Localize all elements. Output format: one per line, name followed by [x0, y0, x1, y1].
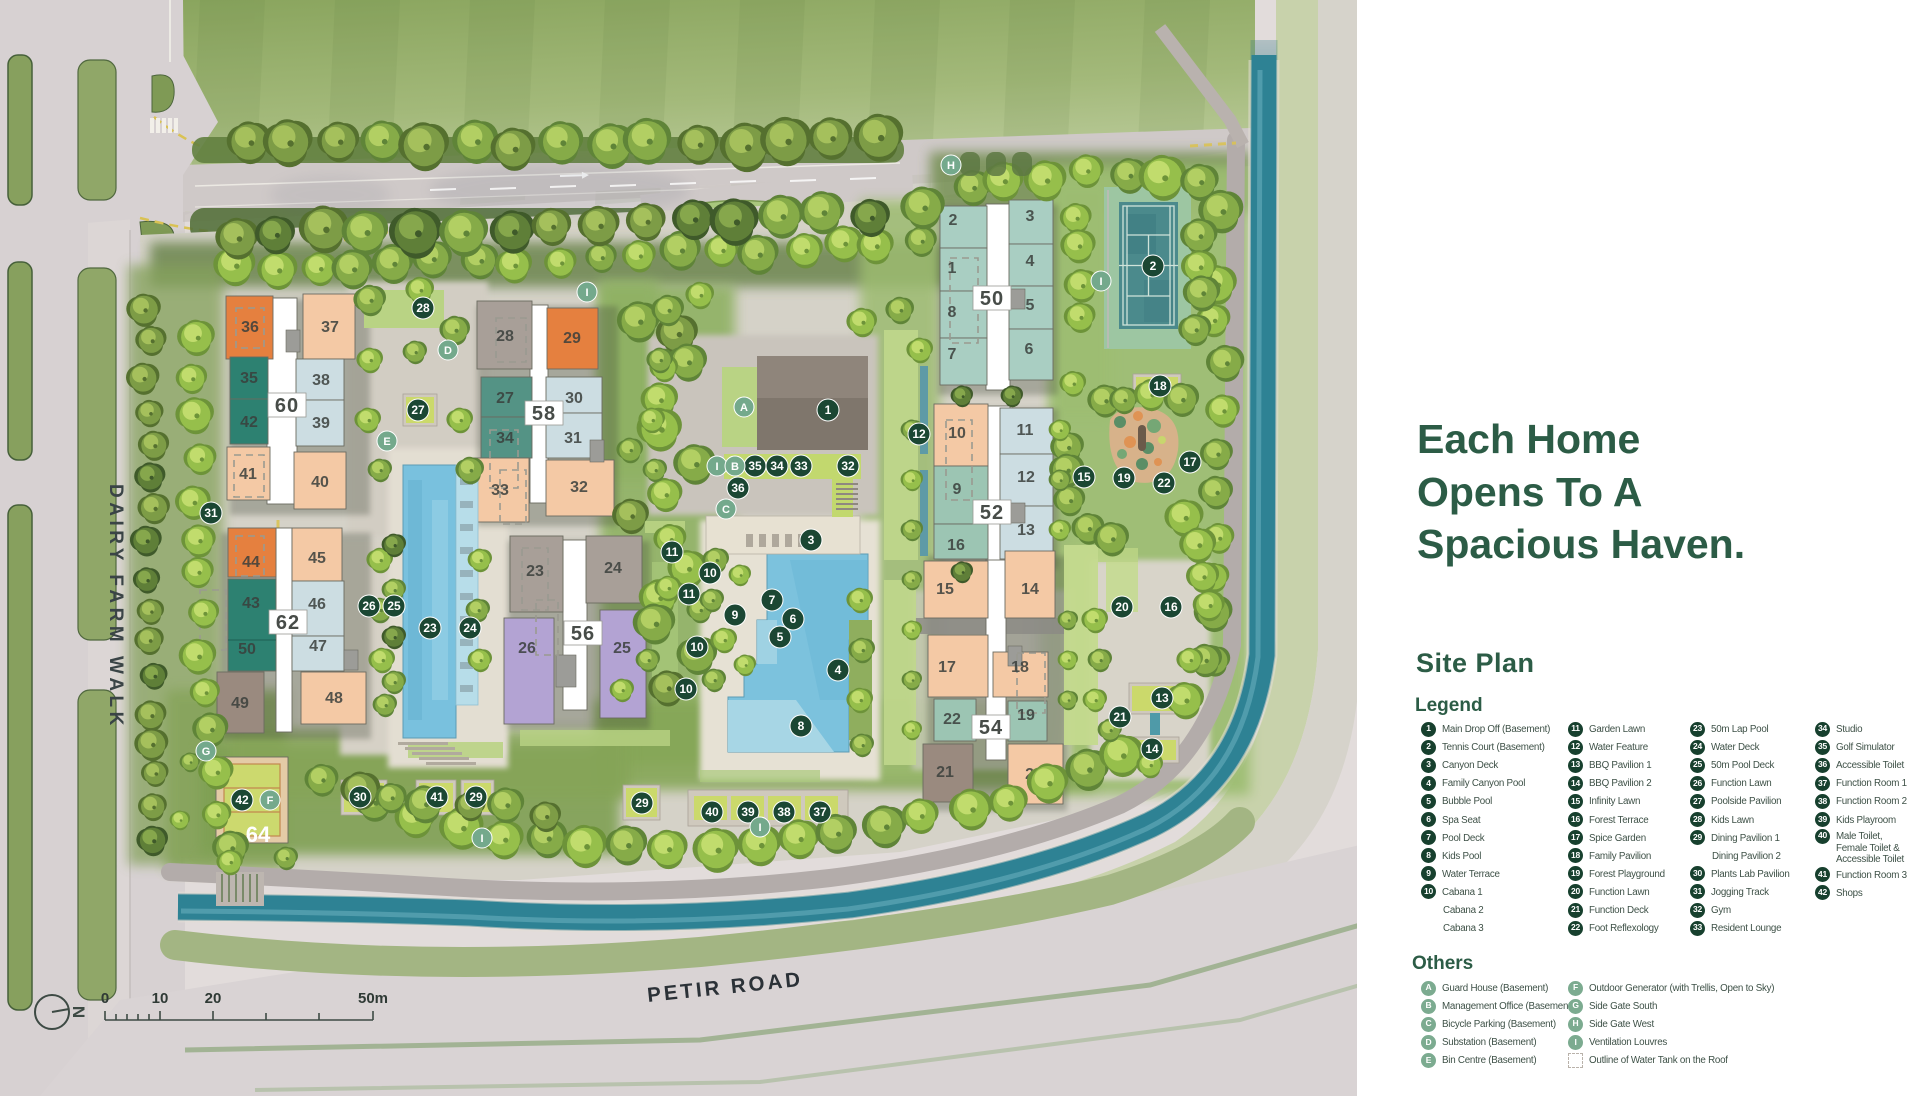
svg-text:41: 41: [430, 790, 444, 804]
svg-text:1: 1: [948, 260, 957, 277]
svg-text:21: 21: [936, 764, 954, 781]
svg-text:I: I: [715, 461, 718, 473]
svg-text:17: 17: [1183, 455, 1197, 469]
svg-text:14: 14: [1145, 742, 1159, 756]
svg-text:8: 8: [948, 304, 957, 321]
svg-text:E: E: [383, 436, 390, 448]
svg-text:8: 8: [798, 719, 805, 733]
svg-text:10: 10: [948, 425, 966, 442]
svg-text:26: 26: [518, 640, 536, 657]
svg-text:31: 31: [204, 506, 218, 520]
svg-text:1: 1: [825, 403, 832, 417]
svg-text:15: 15: [1077, 470, 1091, 484]
svg-text:B: B: [731, 461, 739, 473]
svg-text:24: 24: [604, 560, 622, 577]
svg-text:38: 38: [777, 805, 791, 819]
svg-text:20: 20: [205, 990, 222, 1007]
svg-text:30: 30: [353, 790, 367, 804]
svg-text:28: 28: [416, 301, 430, 315]
svg-text:I: I: [758, 822, 761, 834]
svg-text:46: 46: [308, 596, 326, 613]
svg-text:6: 6: [1025, 341, 1034, 358]
svg-text:0: 0: [101, 990, 109, 1007]
svg-text:32: 32: [841, 459, 855, 473]
svg-text:2: 2: [949, 212, 958, 229]
svg-text:3: 3: [1026, 208, 1035, 225]
svg-text:62: 62: [276, 612, 300, 634]
svg-text:I: I: [480, 833, 483, 845]
svg-text:A: A: [740, 402, 748, 414]
svg-text:47: 47: [309, 638, 327, 655]
svg-text:42: 42: [235, 793, 249, 807]
svg-text:34: 34: [496, 430, 514, 447]
svg-text:27: 27: [411, 403, 425, 417]
svg-text:9: 9: [953, 481, 962, 498]
svg-text:54: 54: [979, 717, 1003, 739]
svg-text:25: 25: [613, 640, 631, 657]
svg-text:11: 11: [683, 587, 696, 601]
svg-text:29: 29: [563, 330, 581, 347]
svg-text:N: N: [69, 1006, 88, 1018]
svg-text:26: 26: [362, 599, 376, 613]
svg-text:16: 16: [947, 537, 965, 554]
svg-text:50: 50: [980, 288, 1004, 310]
svg-text:37: 37: [813, 805, 827, 819]
svg-text:43: 43: [242, 595, 260, 612]
svg-text:39: 39: [741, 805, 755, 819]
svg-text:27: 27: [496, 390, 514, 407]
svg-text:10: 10: [703, 566, 717, 580]
svg-text:40: 40: [311, 474, 329, 491]
svg-text:5: 5: [1026, 297, 1035, 314]
svg-text:11: 11: [1017, 422, 1034, 439]
svg-text:25: 25: [387, 599, 401, 613]
svg-text:11: 11: [666, 545, 679, 559]
svg-text:56: 56: [571, 623, 595, 645]
svg-text:34: 34: [770, 459, 784, 473]
svg-text:10: 10: [690, 640, 704, 654]
svg-text:D: D: [444, 345, 452, 357]
svg-text:10: 10: [152, 990, 169, 1007]
svg-text:45: 45: [308, 550, 326, 567]
svg-text:58: 58: [532, 403, 556, 425]
svg-text:33: 33: [491, 482, 509, 499]
svg-text:50m: 50m: [358, 990, 388, 1007]
svg-text:13: 13: [1155, 691, 1169, 705]
svg-text:23: 23: [526, 563, 544, 580]
svg-text:4: 4: [835, 663, 842, 677]
svg-text:50: 50: [238, 641, 256, 658]
svg-text:35: 35: [240, 370, 258, 387]
svg-text:29: 29: [635, 796, 649, 810]
svg-text:28: 28: [496, 328, 514, 345]
svg-text:12: 12: [1017, 469, 1035, 486]
svg-text:7: 7: [948, 346, 957, 363]
svg-text:36: 36: [731, 481, 745, 495]
svg-text:G: G: [202, 746, 211, 758]
svg-text:15: 15: [936, 581, 954, 598]
svg-text:48: 48: [325, 690, 343, 707]
svg-text:35: 35: [748, 459, 762, 473]
svg-text:4: 4: [1026, 253, 1035, 270]
svg-text:37: 37: [321, 319, 339, 336]
svg-text:20: 20: [1115, 600, 1129, 614]
svg-text:60: 60: [275, 395, 299, 417]
svg-text:19: 19: [1017, 707, 1035, 724]
svg-text:DAIRY FARM WALK: DAIRY FARM WALK: [105, 484, 126, 730]
svg-text:49: 49: [231, 695, 249, 712]
svg-text:22: 22: [943, 711, 961, 728]
svg-text:5: 5: [777, 630, 784, 644]
svg-text:29: 29: [469, 790, 483, 804]
svg-text:32: 32: [570, 479, 588, 496]
svg-text:18: 18: [1153, 379, 1167, 393]
svg-text:H: H: [947, 160, 955, 172]
svg-text:16: 16: [1164, 600, 1178, 614]
svg-text:17: 17: [938, 659, 956, 676]
svg-text:33: 33: [794, 459, 808, 473]
svg-text:10: 10: [679, 682, 693, 696]
svg-text:14: 14: [1021, 581, 1039, 598]
svg-text:41: 41: [239, 466, 257, 483]
svg-text:36: 36: [241, 319, 259, 336]
svg-text:7: 7: [769, 593, 776, 607]
svg-text:22: 22: [1157, 476, 1171, 490]
svg-text:39: 39: [312, 415, 330, 432]
svg-text:64: 64: [246, 822, 271, 847]
svg-text:3: 3: [808, 533, 815, 547]
svg-text:13: 13: [1017, 522, 1035, 539]
svg-text:30: 30: [565, 390, 583, 407]
svg-text:2: 2: [1150, 259, 1157, 273]
svg-text:38: 38: [312, 372, 330, 389]
svg-text:21: 21: [1113, 710, 1127, 724]
svg-text:31: 31: [564, 430, 582, 447]
svg-text:I: I: [1099, 276, 1102, 288]
svg-text:9: 9: [732, 608, 739, 622]
svg-text:C: C: [722, 504, 730, 516]
svg-text:6: 6: [790, 612, 797, 626]
svg-text:24: 24: [463, 621, 477, 635]
svg-text:42: 42: [240, 414, 258, 431]
svg-text:40: 40: [705, 805, 719, 819]
svg-text:12: 12: [912, 427, 926, 441]
svg-text:52: 52: [980, 502, 1004, 524]
svg-text:F: F: [267, 795, 274, 807]
svg-text:I: I: [585, 287, 588, 299]
svg-text:19: 19: [1117, 471, 1131, 485]
svg-text:44: 44: [242, 554, 260, 571]
svg-text:23: 23: [423, 621, 437, 635]
svg-text:18: 18: [1011, 659, 1029, 676]
